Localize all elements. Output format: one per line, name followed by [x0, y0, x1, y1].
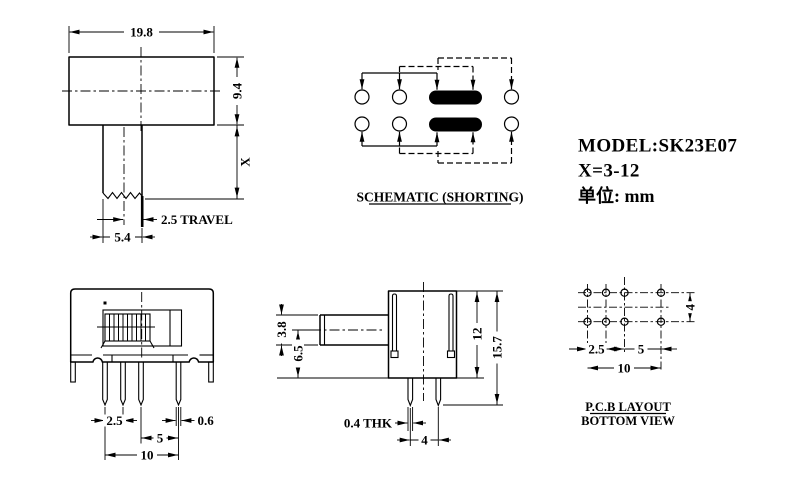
dim-label-body-height: 12 [470, 328, 485, 341]
dim-label-shaft-length: X [238, 157, 253, 167]
dim-travel: 2.5 TRAVEL [97, 212, 233, 227]
side-view: 3.8 6.5 12 15.7 [274, 282, 505, 448]
model-number: MODEL:SK23E07 [578, 136, 737, 157]
dim-label-shaft-width: 5.4 [114, 230, 131, 245]
x-range: X=3-12 [578, 161, 640, 182]
dim-label-width: 19.8 [130, 25, 153, 40]
terminal-pins [103, 362, 181, 405]
dim-label-span: 10 [141, 448, 154, 463]
switch-body-outline [389, 291, 457, 378]
break-line [103, 193, 142, 199]
front-pin-view: 2.5 0.6 5 10 [71, 289, 215, 463]
schematic-caption: SCHEMATIC (SHORTING) [357, 190, 524, 205]
dim-label-pin-spacing: 4 [421, 433, 428, 448]
front-view-dims: 2.5 0.6 5 10 [91, 407, 214, 463]
shorting-bar-bottom [429, 118, 482, 132]
title-block: MODEL:SK23E07 X=3-12 单位: mm [578, 136, 737, 207]
dim-label-pcb-span: 10 [618, 361, 631, 376]
pin-1 [103, 362, 108, 405]
schematic-caption-text: SCHEMATIC (SHORTING) [357, 190, 524, 205]
drawing-canvas: 19.8 9.4 X 2.5 TRAVEL [0, 0, 800, 480]
pcb-caption-line2: BOTTOM VIEW [581, 414, 675, 428]
dim-label-height: 9.4 [230, 82, 245, 99]
side-rails [391, 294, 455, 358]
dim-label-knob-height: 3.8 [274, 321, 289, 338]
dim-label-total-height: 15.7 [490, 336, 505, 359]
terminal-pins [408, 378, 441, 406]
knurl-lines [110, 314, 146, 341]
drawing-sheet: 19.8 9.4 X 2.5 TRAVEL [0, 0, 800, 480]
top-front-view: 19.8 9.4 X 2.5 TRAVEL [62, 25, 253, 245]
actuator-shaft [103, 125, 142, 227]
pin-2 [121, 362, 126, 405]
unit-label: 单位: mm [578, 185, 654, 206]
pin-rear [436, 378, 441, 406]
schematic-view: SCHEMATIC (SHORTING) [355, 58, 523, 205]
dim-shaft-width: 5.4 [90, 199, 155, 245]
dim-label-travel: 2.5 TRAVEL [161, 212, 233, 227]
dim-label-pitch-small: 2.5 [106, 413, 123, 428]
dim-label-pcb-pitch-large: 5 [638, 342, 645, 357]
mount-ear-left [71, 362, 76, 382]
dim-height: 9.4 [217, 57, 245, 125]
pcb-caption-line1: P.C.B LAYOUT [585, 400, 671, 414]
wiring-bottom [362, 132, 512, 163]
wiring-top [362, 58, 512, 90]
pcb-dims: 4 2.5 5 10 [569, 293, 698, 376]
position-dot [104, 302, 107, 305]
dim-label-row-spacing: 4 [683, 303, 698, 310]
dim-width: 19.8 [69, 25, 214, 54]
pin-front [408, 378, 413, 406]
pcb-layout-view: 4 2.5 5 10 P.C.B LAYOUT BOTTOM VIEW [569, 277, 698, 428]
pin-3 [139, 362, 144, 405]
dim-label-pcb-pitch-small: 2.5 [588, 342, 605, 357]
pin-4 [176, 362, 181, 405]
dim-label-knob-center: 6.5 [291, 345, 306, 362]
mount-ear-right [209, 362, 214, 382]
dim-label-pin-width: 0.6 [198, 413, 215, 428]
pad-centerlines [578, 277, 695, 371]
dim-label-pin-thickness: 0.4 THK [344, 416, 393, 431]
shorting-bar-top [429, 91, 482, 105]
shorting-bars [429, 91, 482, 132]
dim-label-pitch-large: 5 [157, 431, 164, 446]
pcb-caption: P.C.B LAYOUT BOTTOM VIEW [581, 400, 675, 428]
dim-shaft-length: X [145, 125, 253, 199]
slider-knob [97, 302, 182, 349]
